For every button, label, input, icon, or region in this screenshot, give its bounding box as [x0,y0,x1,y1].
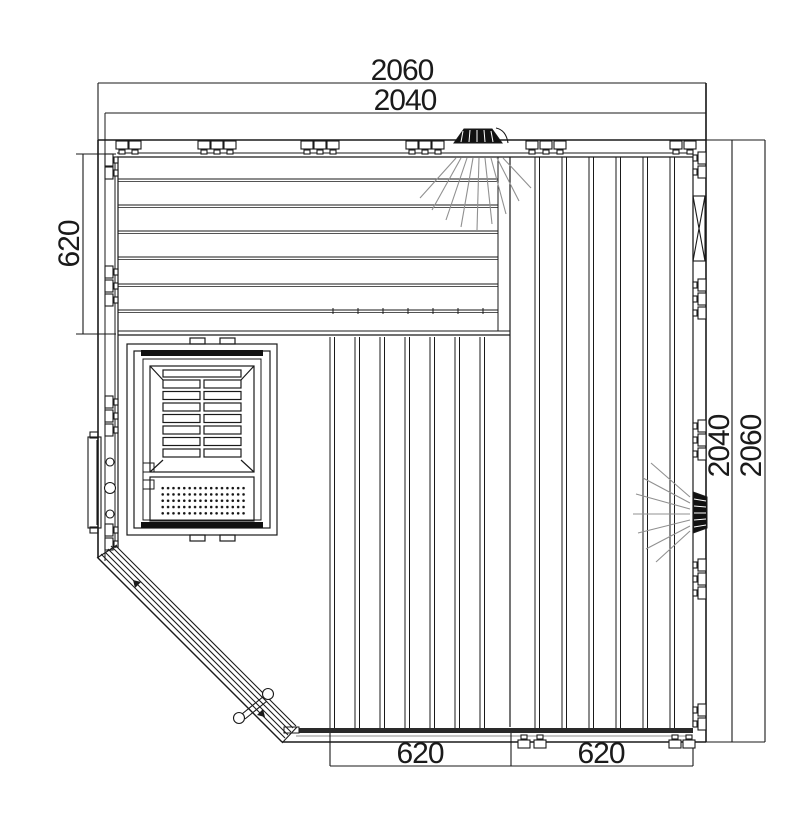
floor-plan-drawing: 2060 2040 620 2040 2060 620 620 [0,0,811,826]
wall-connector-icon [693,587,706,599]
wall-connector-icon [432,141,444,154]
light-rays [633,463,690,562]
wall-connector-icon [211,141,223,154]
bench-slats [118,157,510,727]
wall-connector-icon [105,154,118,166]
dim-label-right-inner: 2040 [703,414,736,477]
wall-connector-icon [693,307,706,319]
wall-connector-icon [105,294,118,306]
wall-connector-icon [518,735,530,748]
wall-connector-icon [105,524,118,536]
heater-perforation-dots [160,485,246,515]
dim-label-right-outer: 2060 [735,414,768,477]
wall-connector-icon [693,718,706,730]
wall-connector-icon [693,573,706,585]
wall-connector-icon [105,424,118,436]
wall-connector-icon [693,166,706,178]
wall-connector-icon [693,559,706,571]
dimension-bottom: 620 620 [330,733,693,770]
dim-label-bottom-left: 620 [396,737,443,770]
heater-louvers [150,366,254,472]
top-wall-connectors [116,141,696,154]
dim-label-left: 620 [53,220,86,267]
dimension-right-outer: 2060 [735,140,768,742]
floorboards-right [535,157,675,728]
dimension-left-bench: 620 [53,154,116,334]
wall-connector-icon [129,141,141,154]
wall-connector-icon [534,735,546,748]
vent-cross-icon [693,196,705,261]
wall-connector-icon [105,410,118,422]
wall-connector-icon [693,279,706,291]
wall-connector-icon [116,141,128,154]
wall-connector-icon [105,280,118,292]
wall-connector-icon [554,141,566,154]
dimension-top-inner: 2040 [105,84,706,117]
wall-connector-icon [693,420,706,432]
right-wall-connectors [693,152,706,730]
wall-connector-icon [314,141,326,154]
wall-connector-icon [105,266,118,278]
wall-connector-icon [669,735,681,748]
wall-connector-icon [105,396,118,408]
wall-connector-icon [693,293,706,305]
floorboards-middle [330,337,485,728]
wall-connector-icon [693,152,706,164]
wall-connector-icon [526,141,538,154]
wall-connector-icon [224,141,236,154]
heater-control-panel [88,432,116,533]
wall-connector-icon [684,141,696,154]
wall-connector-icon [540,141,552,154]
wall-connector-icon [105,167,118,179]
bottom-wall-inner-band [296,728,693,733]
floor-plan-svg: 2060 2040 620 2040 2060 620 620 [0,0,811,826]
wall-connector-icon [406,141,418,154]
dim-label-top-outer: 2060 [371,54,434,87]
wall-connector-icon [419,141,431,154]
dim-label-top-inner: 2040 [374,84,437,117]
wall-connector-icon [693,704,706,716]
wall-connector-icon [683,735,695,748]
dim-label-bottom-right: 620 [577,737,624,770]
wall-connector-icon [198,141,210,154]
wall-connector-icon [670,141,682,154]
corner-door [97,545,297,743]
wall-connector-icon [327,141,339,154]
wall-connector-icon [693,448,706,460]
light-rays [420,158,531,230]
wall-connector-icon [301,141,313,154]
wall-connector-icon [693,434,706,446]
